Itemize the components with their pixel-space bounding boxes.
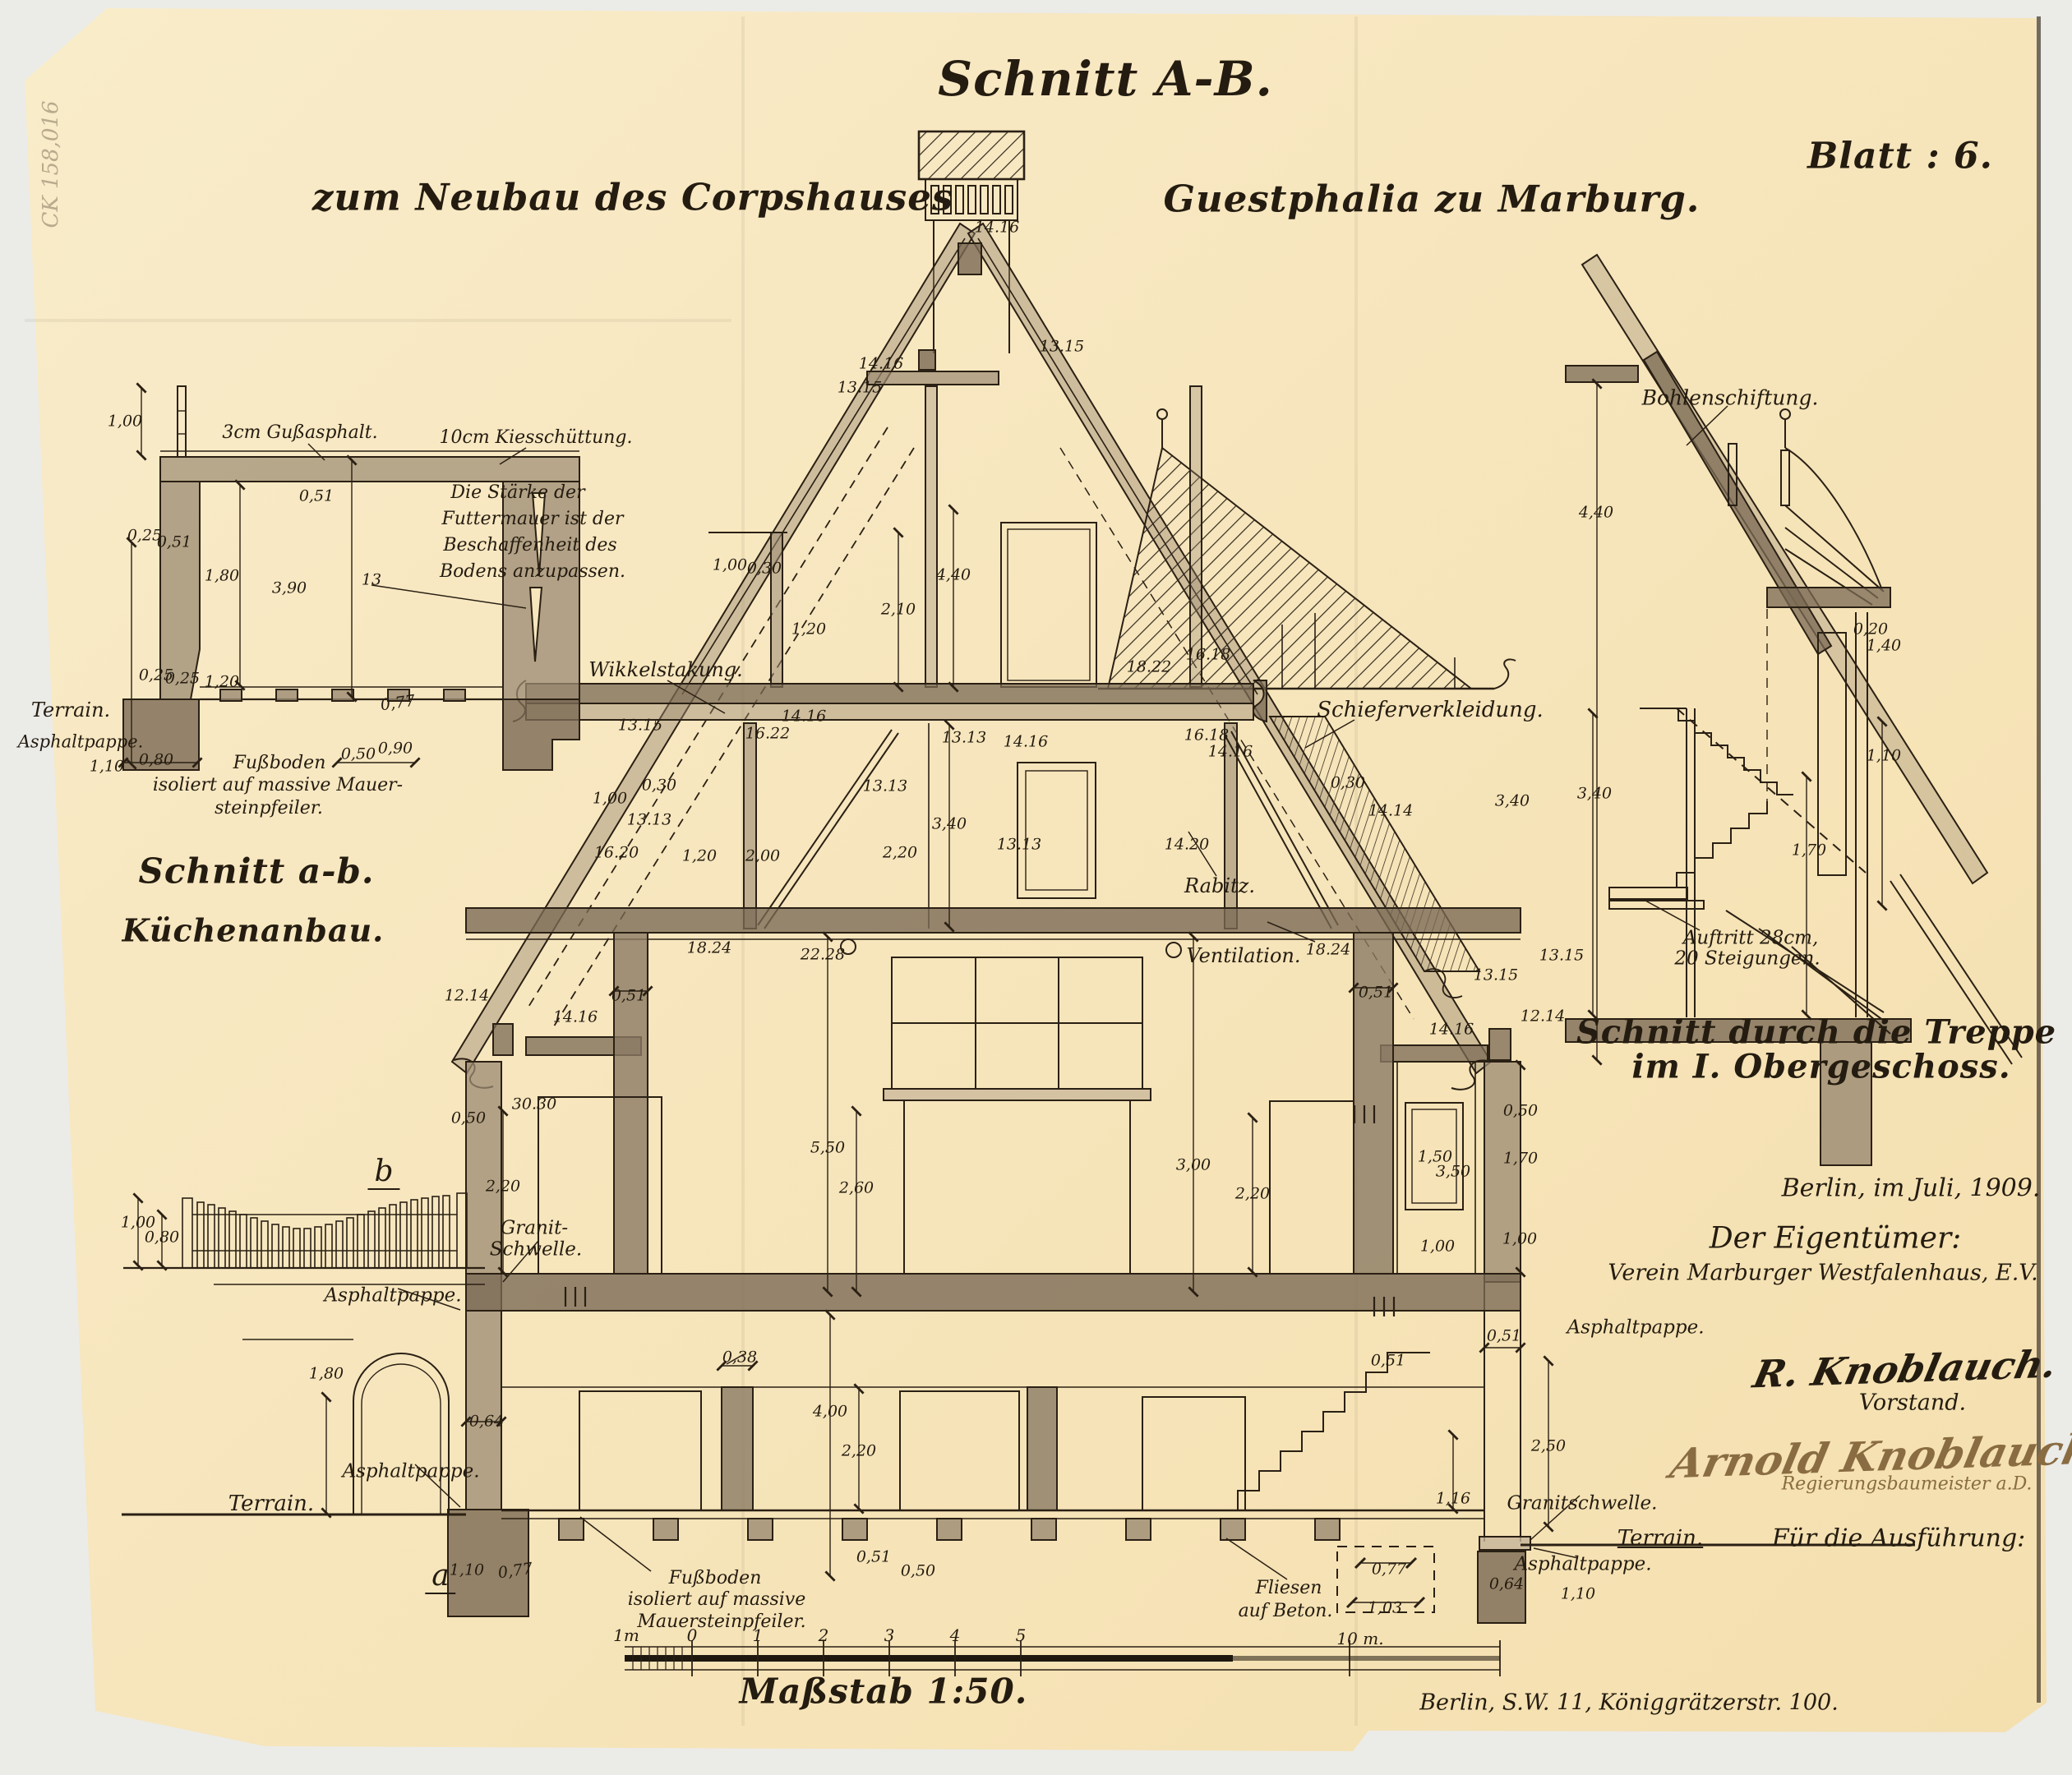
stair-detail-title-line1: Schnitt durch die Treppe	[1576, 1013, 2056, 1052]
address-caption: Berlin, S.W. 11, Königgrätzerstr. 100.	[1419, 1690, 1839, 1716]
dimension-label: 1,70	[1792, 843, 1826, 859]
dimension-label: 16.18	[1184, 728, 1229, 744]
dimension-label: 2,20	[842, 1444, 876, 1459]
dimension-label: 13.13	[627, 813, 671, 828]
sheet-subtitle-right: Guestphalia zu Marburg.	[1164, 177, 1701, 221]
dimension-label: 14.16	[1429, 1022, 1474, 1038]
dimension-label: 4,00	[813, 1404, 847, 1420]
dimension-label: 16.18	[1186, 648, 1230, 663]
dimension-label: 2,50	[1531, 1439, 1566, 1455]
note-label: isoliert auf massive	[628, 1591, 805, 1609]
dimension-label: 16.20	[594, 846, 639, 861]
note-label: Asphaltpappe.	[18, 734, 144, 751]
dimension-label: 22.28	[801, 947, 845, 963]
note-label: Granit-	[501, 1219, 568, 1238]
note-label: Beschaffenheit des	[443, 537, 616, 555]
dimension-label: 13	[362, 573, 381, 588]
dimension-label: 2,20	[486, 1179, 520, 1195]
scale-tick-label: 3	[884, 1627, 895, 1644]
note-label: Asphaltpappe.	[1567, 1319, 1704, 1338]
dimension-label: 3,40	[1577, 786, 1612, 802]
dimension-label: 12.14	[445, 989, 489, 1004]
dimension-label: 2,10	[881, 602, 916, 618]
dimension-label: 2,20	[1235, 1187, 1270, 1202]
note-label: Die Stärke der	[450, 484, 584, 502]
dimension-label: 18.22	[1127, 660, 1171, 675]
note-label: steinpfeiler.	[215, 800, 323, 818]
left-detail-title: Schnitt a-b.	[139, 851, 375, 892]
note-label: Wikkelstakung.	[588, 660, 743, 680]
dimension-label: 0,51	[1487, 1329, 1521, 1344]
dimension-label: 13.15	[1539, 948, 1584, 964]
note-label: Asphaltpappe.	[342, 1463, 479, 1482]
dimension-label: 0,30	[1331, 776, 1365, 791]
dimension-label: 18.24	[687, 941, 731, 957]
note-label: Ventilation.	[1187, 946, 1301, 966]
dimension-label: 1,00	[593, 791, 627, 807]
sheet-number: Blatt : 6.	[1807, 136, 1993, 177]
scale-tick-label: 5	[1016, 1627, 1027, 1644]
dimension-label: 1,40	[1867, 639, 1901, 654]
owner-heading: Der Eigentümer:	[1710, 1222, 1962, 1256]
dimension-label: 0,30	[642, 778, 676, 794]
dimension-label: 2,60	[839, 1181, 874, 1196]
dimension-label: 0,51	[1359, 985, 1393, 1001]
dimension-label: 13.15	[1040, 339, 1084, 355]
dimension-label: 14.16	[1208, 745, 1253, 760]
dimension-label: 1,00	[1502, 1232, 1537, 1247]
note-label: Auftritt 28cm,	[1683, 929, 1819, 948]
scale-end-label: 10 m.	[1336, 1630, 1383, 1647]
dimension-label: 1,20	[682, 849, 717, 864]
note-label: Terrain.	[228, 1493, 314, 1515]
dimension-label: 1,16	[1436, 1491, 1470, 1507]
scale-tick-label: 4	[950, 1627, 961, 1644]
note-label: Bohlenschiftung.	[1642, 388, 1819, 408]
scale-tick-label: 0	[687, 1627, 698, 1644]
dimension-label: 1,20	[791, 622, 826, 638]
dimension-label: 0,80	[145, 1230, 179, 1246]
dimension-label: 14.14	[1368, 804, 1413, 819]
scale-tick-label: 2	[819, 1627, 829, 1644]
dimension-label: 0,51	[611, 989, 646, 1004]
note-label: 3cm Gußasphalt.	[222, 424, 377, 442]
note-label: Bodens anzupassen.	[440, 563, 625, 581]
dimension-label: 1,20	[205, 675, 239, 690]
dimension-label: 1,03	[1368, 1601, 1402, 1616]
owner-name: Verein Marburger Westfalenhaus, E.V.	[1608, 1261, 2037, 1286]
scale-caption: Maßstab 1:50.	[740, 1671, 1028, 1712]
dimension-label: 4,40	[1579, 505, 1613, 521]
dimension-label: 0,90	[378, 741, 413, 757]
signature-baumeister-role: Regierungsbaumeister a.D.	[1782, 1474, 2033, 1495]
dimension-label: 0,77	[1372, 1562, 1406, 1578]
dimension-label: 0,30	[747, 561, 782, 577]
dimension-label: 0,51	[299, 489, 334, 505]
dimension-label: 1,80	[205, 569, 239, 584]
dimension-label: 3,40	[1495, 794, 1530, 809]
dimension-label: 30.30	[512, 1097, 556, 1113]
note-label: Futtermauer ist der	[441, 510, 623, 528]
note-label: Asphaltpappe.	[1514, 1556, 1651, 1574]
dimension-label: 14.20	[1165, 837, 1209, 853]
execution-heading: Für die Ausführung:	[1772, 1524, 2026, 1553]
dimension-label: 16.22	[745, 726, 790, 742]
dimension-label: 0,20	[1853, 622, 1888, 638]
dimension-label: 2,00	[745, 849, 780, 864]
dimension-label: 0,51	[856, 1550, 891, 1565]
dimension-label: 14.16	[553, 1010, 598, 1026]
dimension-label: 13.15	[838, 380, 882, 396]
dimension-label: 4,40	[936, 568, 971, 583]
note-label: Schwelle.	[490, 1241, 582, 1260]
note-label: Fliesen	[1256, 1579, 1322, 1597]
dimension-label: 12.14	[1521, 1009, 1565, 1025]
note-label: 10cm Kiesschüttung.	[440, 429, 633, 447]
dimension-label: 3,50	[1436, 1164, 1470, 1180]
left-detail-subtitle: Küchenanbau.	[122, 912, 385, 949]
dimension-label: 1,70	[1503, 1151, 1538, 1167]
dimension-label: 18.24	[1306, 943, 1350, 958]
dimension-label: 14.16	[975, 220, 1019, 236]
dimension-label: 14.16	[1004, 735, 1048, 750]
dimension-label: 14.16	[859, 357, 903, 372]
dimension-label: 13.13	[997, 837, 1041, 853]
dimension-label: 13.15	[618, 718, 662, 734]
dimension-label: 0,64	[1489, 1577, 1524, 1593]
section-marker: b	[367, 1157, 399, 1190]
dimension-label: 1,10	[450, 1563, 484, 1579]
note-label: Granitschwelle.	[1507, 1495, 1658, 1514]
stair-detail-title-line2: im I. Obergeschoss.	[1631, 1048, 2010, 1086]
note-label: Terrain.	[31, 700, 110, 720]
dimension-label: 0,25	[165, 671, 200, 687]
note-label: auf Beton.	[1239, 1602, 1333, 1621]
dimension-label: 0,51	[1371, 1353, 1405, 1369]
dimension-label: 0,50	[901, 1564, 935, 1579]
dimension-label: 1,00	[108, 414, 142, 430]
dimension-label: 13.13	[863, 779, 907, 795]
dimension-label: 2,20	[883, 846, 917, 861]
note-label: Fußboden	[669, 1570, 762, 1588]
scale-tick-label: 1	[753, 1627, 764, 1644]
note-label: isoliert auf massive Mauer-	[153, 777, 403, 795]
dimension-label: 13.13	[942, 731, 986, 746]
dimension-label: 0,51	[157, 535, 192, 551]
dimension-label: 1,10	[1561, 1587, 1595, 1602]
dimension-label: 0,64	[469, 1414, 504, 1430]
dimension-label: 3,40	[932, 817, 967, 832]
dimension-label: 0,80	[139, 753, 173, 768]
dimension-label: 0,50	[1503, 1104, 1538, 1119]
dimension-label: 3,90	[272, 581, 307, 597]
dimension-label: 14.16	[782, 709, 826, 725]
signature-vorstand-role: Vorstand.	[1859, 1390, 1966, 1416]
dimension-label: 3,00	[1176, 1158, 1211, 1173]
note-label: Terrain.	[1617, 1528, 1703, 1549]
note-label: Asphaltpappe.	[324, 1287, 461, 1306]
dimension-label: 1,10	[1867, 749, 1901, 764]
note-label: Fußboden	[233, 754, 326, 772]
sheet-subtitle-left: zum Neubau des Corpshauses	[312, 176, 953, 219]
note-label: Mauersteinpfeiler.	[637, 1613, 805, 1631]
archive-note: CK 158,016	[39, 100, 63, 228]
note-label: Schieferverkleidung.	[1317, 699, 1544, 721]
scale-unit-label: 1m	[613, 1627, 639, 1644]
dimension-label: 0,50	[341, 747, 376, 763]
dimension-label: 1,80	[309, 1367, 344, 1382]
dimension-label: 0,38	[722, 1350, 757, 1366]
dimension-label: 13.15	[1474, 968, 1518, 984]
dimension-label: 0,50	[451, 1111, 486, 1127]
dimension-label: 1,00	[713, 558, 747, 574]
note-label: 20 Steigungen.	[1674, 950, 1820, 969]
dimension-label: 1,00	[1420, 1239, 1455, 1255]
date-line: Berlin, im Juli, 1909.	[1782, 1174, 2041, 1203]
sheet-title: Schnitt A-B.	[938, 51, 1273, 107]
note-label: Rabitz.	[1184, 876, 1255, 896]
dimension-label: 1,10	[90, 759, 124, 775]
dimension-label: 5,50	[810, 1141, 845, 1156]
